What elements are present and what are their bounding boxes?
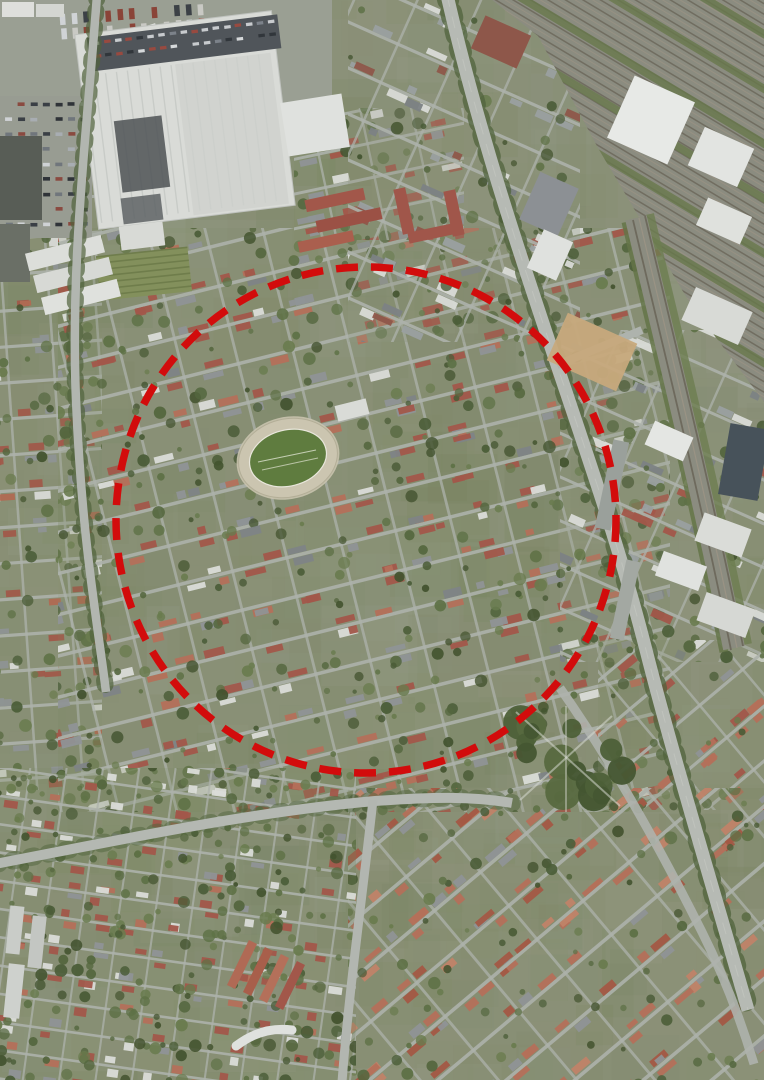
dark-depot-2: [0, 224, 30, 282]
aerial-photo-image: [0, 0, 764, 1080]
shed-nw-2: [36, 4, 64, 17]
solar-panel-patch: [114, 115, 170, 192]
aerial-map: [0, 0, 764, 1080]
dark-depot: [0, 136, 42, 220]
aerial-scene: [0, 0, 764, 1080]
factory-roof-tint: [175, 53, 289, 216]
solar-panel-patch-2: [121, 194, 164, 225]
factory-annex: [280, 93, 350, 156]
shed-nw-1: [2, 2, 34, 17]
